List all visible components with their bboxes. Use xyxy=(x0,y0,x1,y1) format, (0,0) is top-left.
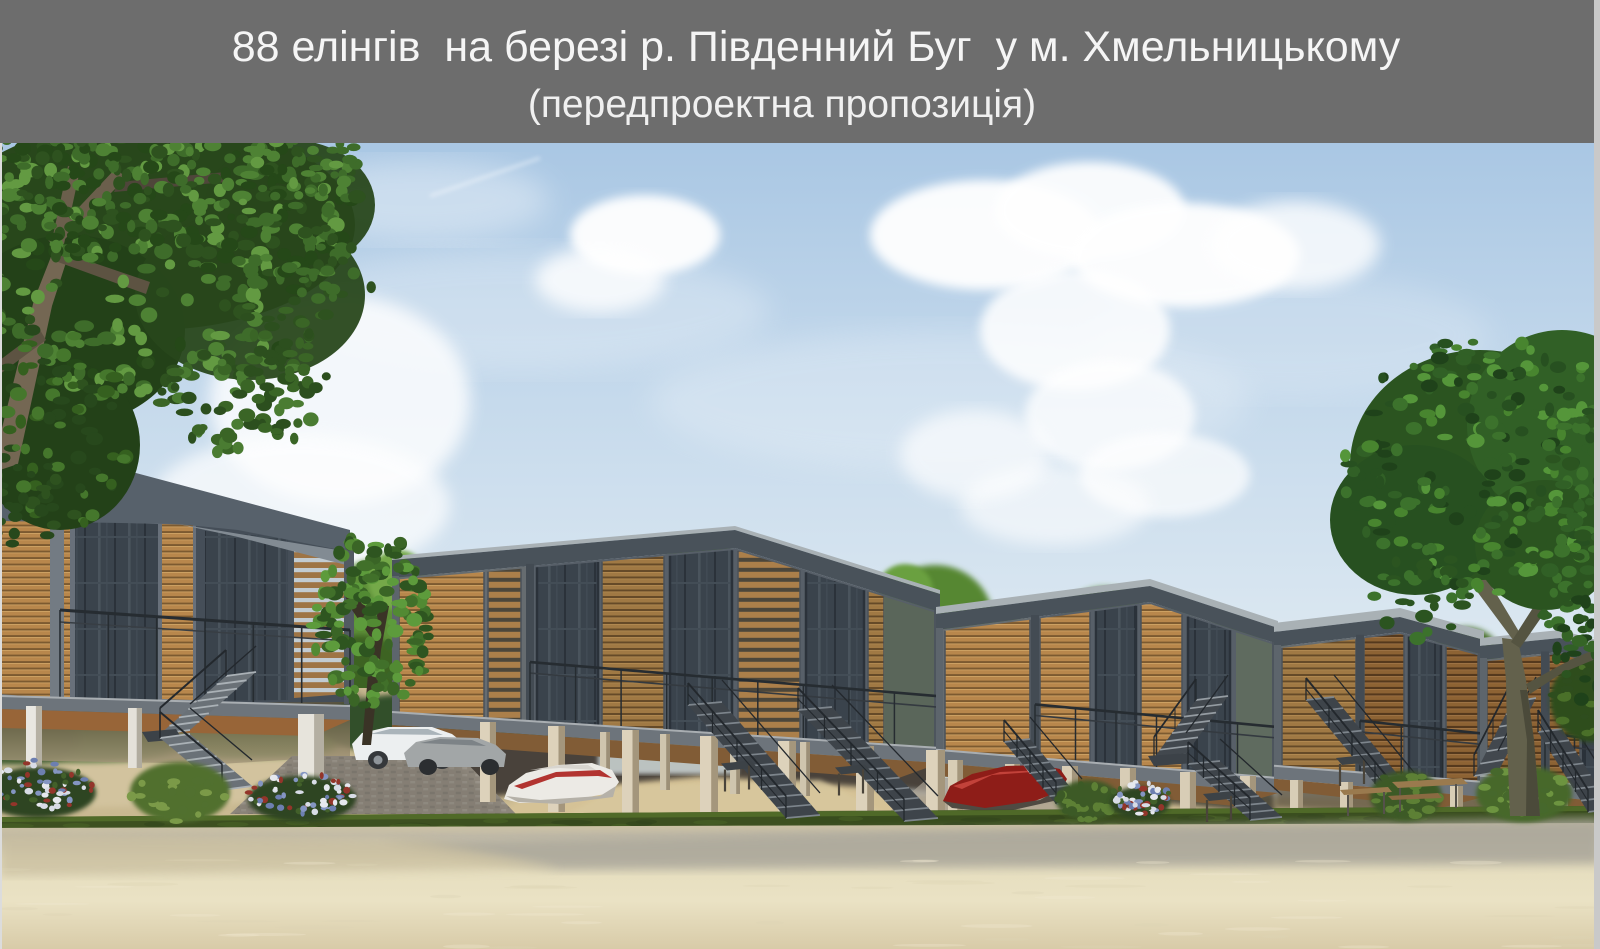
svg-text:(передпроектна пропозиція): (передпроектна пропозиція) xyxy=(528,83,1036,126)
svg-text:88 елінгів на березі р. Півде: 88 елінгів на березі р. Південний Буг у … xyxy=(232,23,1401,71)
